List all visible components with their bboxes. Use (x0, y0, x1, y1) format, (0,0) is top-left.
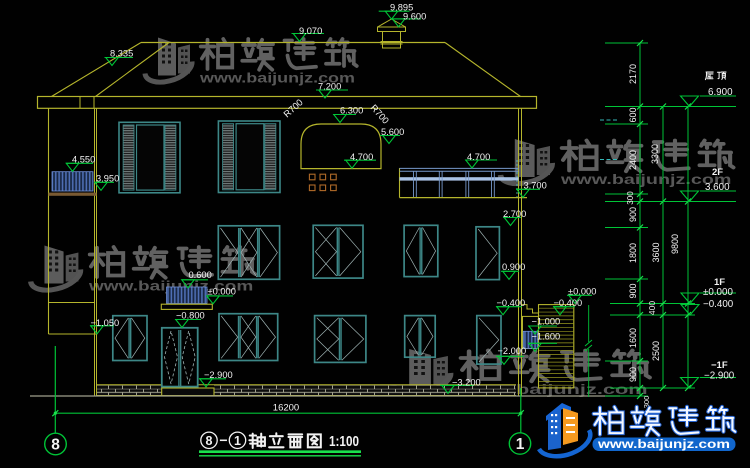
svg-text:−2.900: −2.900 (704, 371, 735, 382)
svg-text:8: 8 (206, 434, 213, 448)
svg-text:−: − (219, 432, 227, 448)
svg-text:−2.000: −2.000 (498, 346, 527, 356)
svg-text:0.900: 0.900 (502, 262, 525, 272)
svg-text:8.335: 8.335 (110, 49, 133, 59)
svg-text:900: 900 (628, 367, 638, 382)
svg-text:±0.000: ±0.000 (568, 287, 596, 297)
svg-text:±0.000: ±0.000 (703, 287, 733, 298)
svg-text:9800: 9800 (670, 234, 680, 254)
svg-text:1800: 1800 (628, 243, 638, 263)
svg-text:900: 900 (628, 207, 638, 222)
svg-text:www.baijunjz.com: www.baijunjz.com (597, 437, 730, 451)
svg-text:900: 900 (628, 283, 638, 298)
svg-text:−3.200: −3.200 (452, 377, 481, 387)
svg-text:−2.900: −2.900 (204, 370, 233, 380)
svg-text:600: 600 (628, 107, 638, 122)
svg-text:2400: 2400 (628, 150, 638, 170)
svg-text:1: 1 (516, 436, 525, 453)
svg-text:300: 300 (626, 191, 635, 205)
svg-text:0.600: 0.600 (189, 270, 212, 280)
svg-text:8: 8 (51, 437, 60, 454)
svg-text:−0.400: −0.400 (497, 298, 526, 308)
svg-text:2F: 2F (712, 167, 723, 178)
svg-text:3600: 3600 (651, 242, 661, 262)
svg-text:4.550: 4.550 (72, 155, 95, 165)
svg-text:−0.400: −0.400 (554, 298, 583, 308)
svg-text:6.300: 6.300 (340, 106, 363, 116)
svg-text:16200: 16200 (273, 403, 299, 414)
svg-text:−1.600: −1.600 (532, 332, 561, 342)
svg-text:2170: 2170 (628, 64, 638, 84)
svg-text:9.600: 9.600 (403, 11, 426, 21)
svg-text:3300: 3300 (650, 144, 660, 164)
svg-text:4.700: 4.700 (350, 152, 373, 162)
svg-text:±0.000: ±0.000 (208, 287, 236, 297)
svg-text:6.900: 6.900 (708, 87, 733, 98)
svg-text:400: 400 (647, 301, 657, 315)
svg-text:1:100: 1:100 (329, 434, 359, 450)
svg-text:−0.400: −0.400 (703, 299, 734, 310)
svg-text:9.070: 9.070 (299, 26, 322, 36)
svg-text:−1.050: −1.050 (91, 318, 120, 328)
svg-text:4.700: 4.700 (467, 152, 490, 162)
svg-text:−1.000: −1.000 (532, 317, 561, 327)
svg-text:1600: 1600 (628, 328, 638, 348)
svg-text:2500: 2500 (651, 341, 661, 361)
svg-text:3.950: 3.950 (96, 174, 119, 184)
svg-text:5.600: 5.600 (381, 127, 404, 137)
svg-text:1: 1 (234, 434, 241, 448)
svg-text:3.700: 3.700 (524, 181, 547, 191)
svg-text:2.700: 2.700 (503, 209, 526, 219)
svg-text:7.200: 7.200 (318, 82, 341, 92)
svg-text:−0.800: −0.800 (176, 311, 205, 321)
svg-text:−1F: −1F (711, 360, 728, 371)
